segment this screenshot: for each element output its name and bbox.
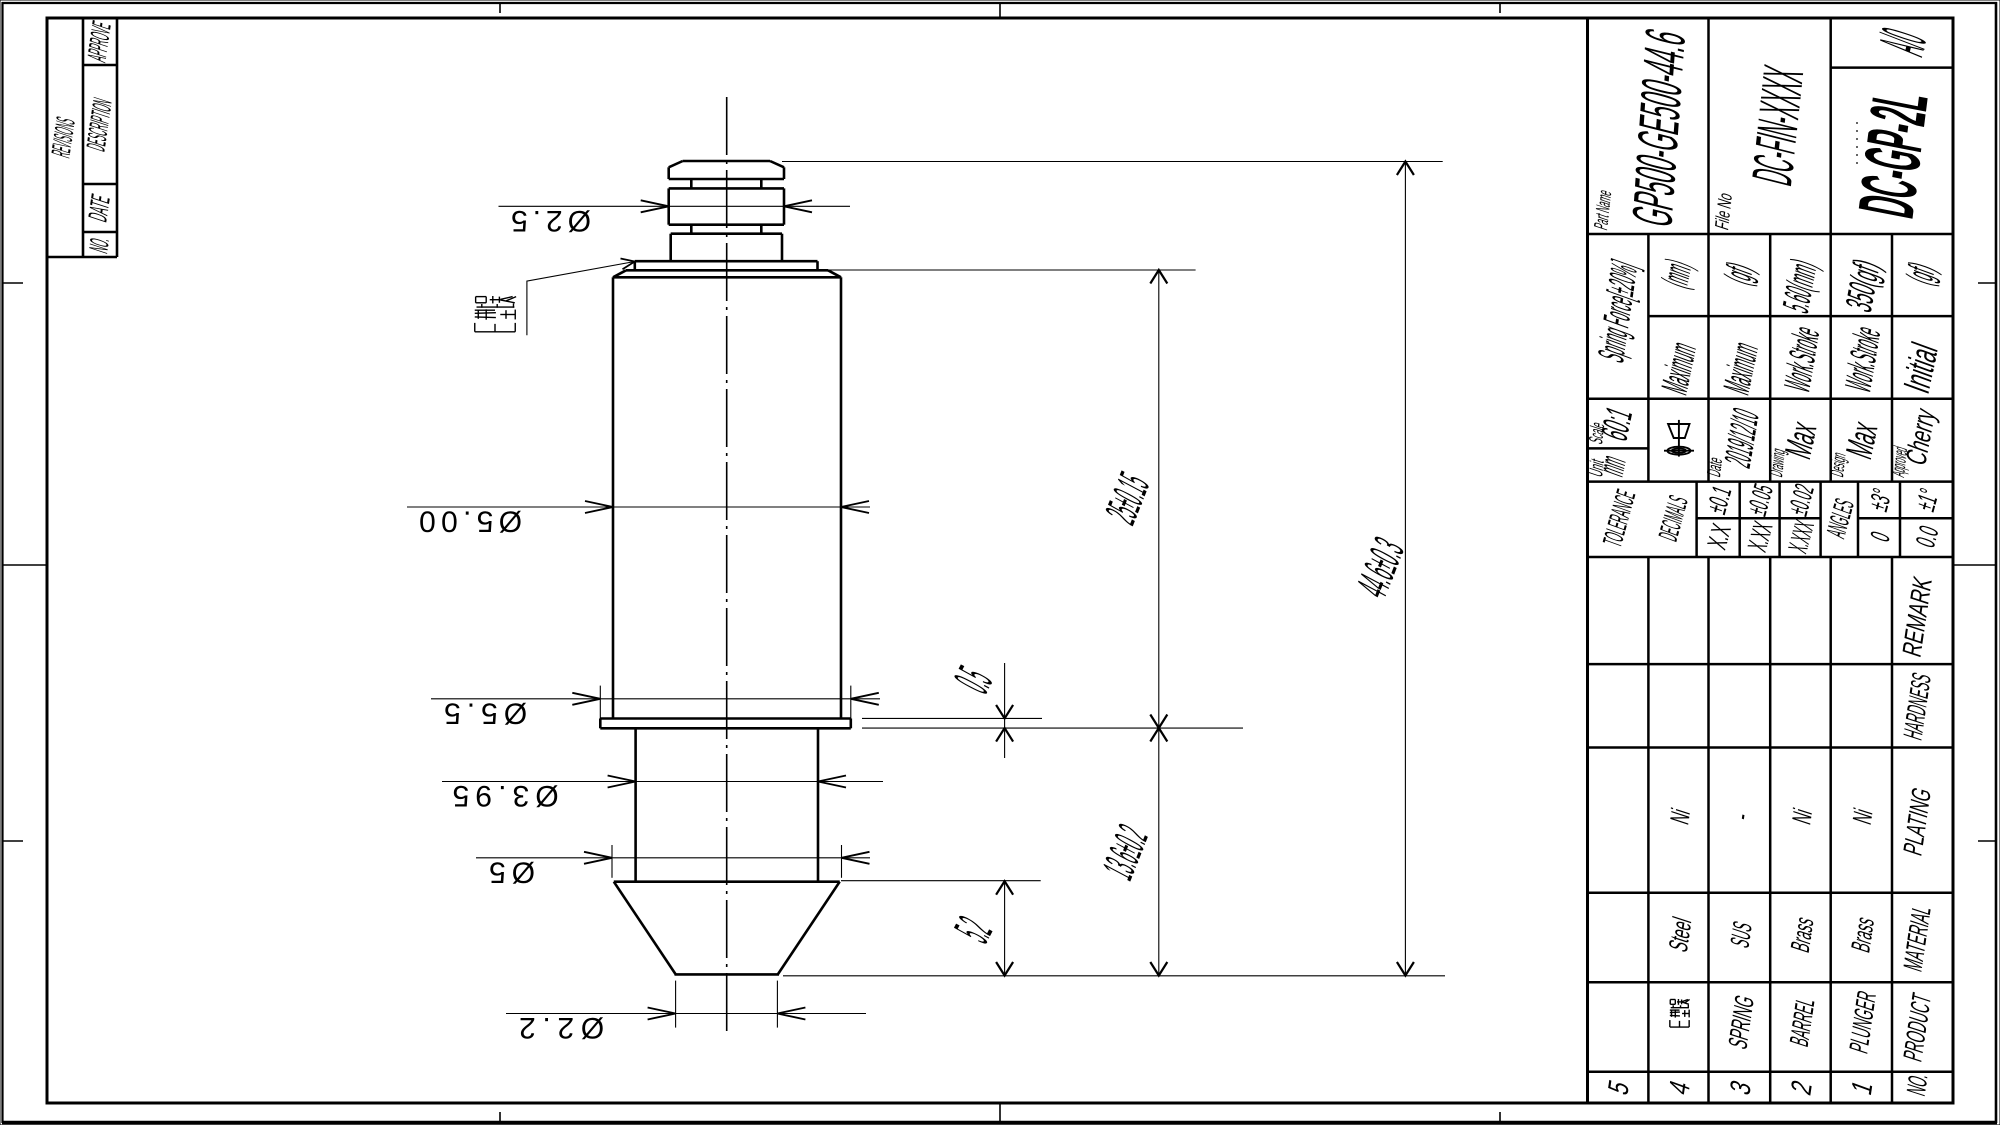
svg-text:Ø5.00: Ø5.00 [419, 505, 522, 538]
svg-text:Ø5: Ø5 [489, 856, 535, 889]
svg-text:File No: File No [1712, 190, 1737, 232]
svg-text:Part Name: Part Name [1591, 187, 1616, 232]
svg-text:Ø2.5: Ø2.5 [511, 204, 591, 237]
svg-text:DC-GP-2L: DC-GP-2L [1841, 84, 1944, 224]
svg-text:DC-FIN-XXXX: DC-FIN-XXXX [1740, 60, 1815, 191]
svg-text:Ø5.5: Ø5.5 [444, 697, 527, 730]
svg-text:Ø2.2: Ø2.2 [519, 1011, 604, 1044]
svg-text:Ø3.95: Ø3.95 [453, 779, 559, 812]
